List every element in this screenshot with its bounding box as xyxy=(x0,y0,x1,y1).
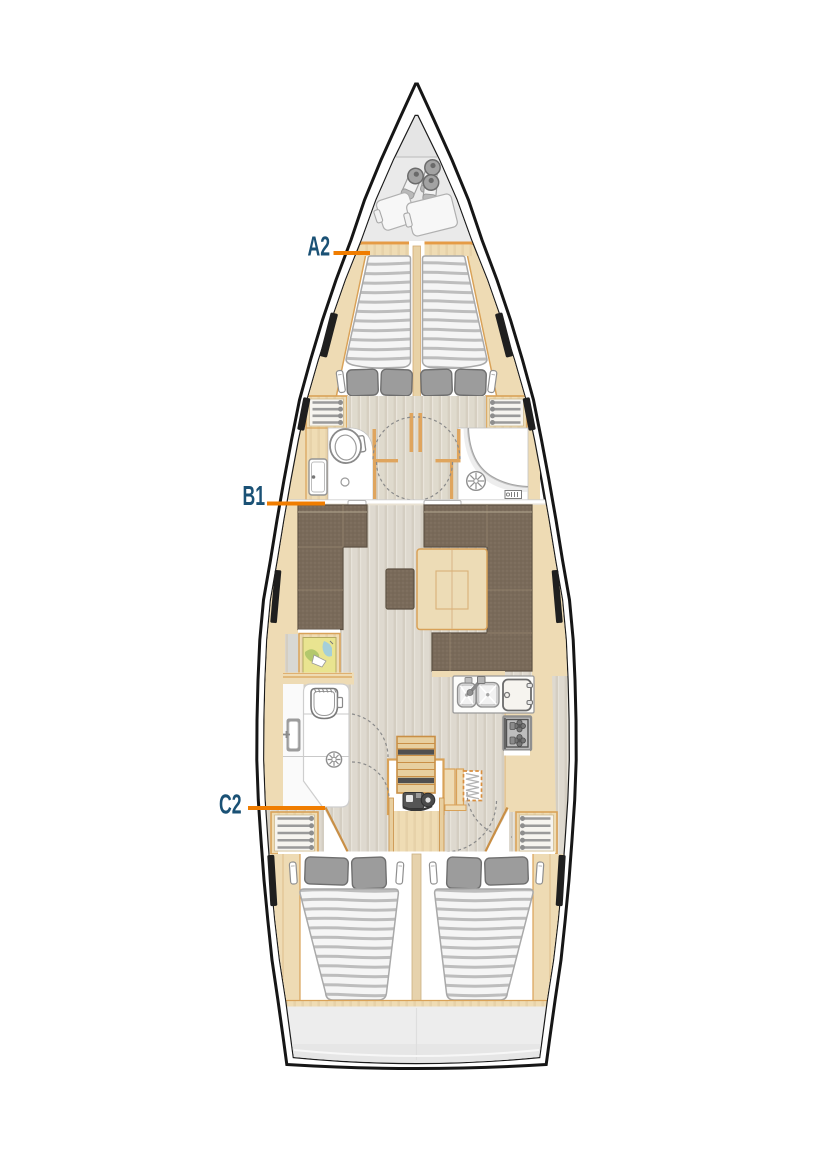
svg-text:A2: A2 xyxy=(308,230,331,261)
svg-text:B1: B1 xyxy=(243,480,266,511)
svg-text:C2: C2 xyxy=(219,788,242,819)
